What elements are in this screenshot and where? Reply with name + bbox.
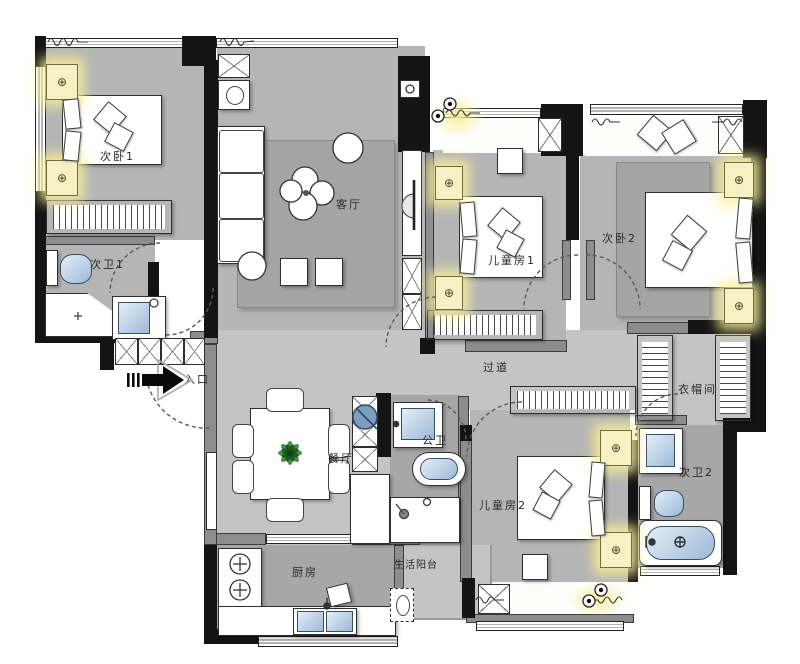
wall-entry-step — [100, 342, 114, 370]
kids2-balcony-cabinet — [478, 584, 510, 614]
utility-cabinet-xbox — [218, 54, 250, 78]
tv-panel — [402, 150, 422, 256]
bedroom2-lamp-top: ⊕ — [724, 162, 754, 198]
window-kids2-balcony — [476, 621, 624, 631]
wall-left-lower — [35, 192, 46, 332]
label-corridor: 过道 — [483, 359, 509, 375]
living-ottoman-1 — [280, 258, 308, 286]
kids2-lamp-bottom: ⊕ — [600, 532, 632, 568]
window-bath2-bottom — [640, 566, 720, 576]
wall-bed2door-r — [586, 240, 595, 300]
label-closet: 衣帽间 — [678, 381, 717, 397]
public-bath-cabinet-3 — [352, 447, 378, 472]
label-entrance: 入口 — [184, 371, 210, 387]
floor-plan: ⊕ ⊕ ⊕ ⊕ ⊕ ⊕ — [0, 0, 800, 664]
public-bath-counter — [350, 474, 390, 544]
entry-shoe-cabinet-4 — [184, 338, 205, 365]
kids2-balcony-light-glow — [568, 582, 628, 616]
public-bath-cabinet-1 — [352, 396, 378, 422]
wall-kitchen-divider-l — [216, 533, 266, 545]
wall-column-living-kids1 — [398, 56, 430, 152]
tv-panel-cabinet-1 — [402, 258, 422, 294]
wall-kids2-left-cap — [460, 425, 472, 441]
public-bath-toilet-bowl — [420, 458, 458, 480]
sofa-cushion-3 — [219, 219, 264, 262]
label-utility-balcony: 生活阳台 — [394, 556, 438, 571]
bedroom1-headboard-pillow-1 — [62, 98, 81, 130]
bedroom2-lamp-bottom: ⊕ — [724, 288, 754, 324]
label-bedroom2: 次卧2 — [602, 230, 637, 246]
living-gadget — [400, 80, 420, 98]
bath2-toilet-bowl — [654, 490, 684, 517]
bedroom1-headboard-pillow-2 — [62, 130, 81, 162]
wall-kids1-bottom-cap — [420, 338, 435, 354]
kids2-lamp-top: ⊕ — [600, 430, 632, 466]
wall-closet-top — [627, 322, 689, 334]
label-kitchen: 厨房 — [292, 564, 318, 580]
wall-closet-right — [751, 330, 766, 426]
door-arc-entry — [148, 385, 210, 428]
kids2-wardrobe — [510, 386, 636, 414]
living-ottoman-2 — [315, 258, 343, 286]
window-living-top — [216, 38, 398, 48]
dining-chair-left-1 — [232, 424, 254, 458]
entry-shoe-cabinet-3 — [161, 338, 184, 365]
utility-washer — [390, 588, 414, 622]
window-bedroom1-top — [45, 38, 183, 48]
kids2-headboard-pillow-2 — [588, 499, 605, 536]
bedroom1-lamp-top: ⊕ — [46, 64, 78, 100]
kids1-balcony-light-glow — [432, 94, 484, 138]
wall-shaft-public — [376, 393, 391, 457]
entry-shoe-cabinet-1 — [115, 338, 138, 365]
kids1-balcony-cabinet — [538, 118, 562, 152]
bath1-toilet-bowl — [60, 254, 92, 284]
kitchen-counter-left — [218, 548, 262, 608]
kids1-lamp-top: ⊕ — [435, 166, 463, 200]
sofa-cushion-1 — [219, 130, 264, 173]
public-bath-cabinet-2 — [352, 422, 378, 447]
bath2-sink — [646, 434, 675, 467]
label-bath2: 次卫2 — [679, 464, 714, 480]
label-dining: 餐厅 — [328, 450, 354, 466]
bath2-bathtub-water — [646, 526, 715, 560]
door-kitchen-sliding — [266, 534, 354, 544]
kitchen-sink-basin-1 — [297, 611, 324, 632]
entrance-arrow-icon — [127, 360, 192, 400]
label-kids1: 儿童房1 — [488, 252, 536, 268]
wall-kitchen-left — [204, 545, 217, 633]
kids1-wardrobe — [427, 310, 543, 340]
entry-shoe-cabinet-2 — [138, 338, 161, 365]
bath1-toilet-tank — [46, 250, 58, 286]
wall-kids2-balcony-l — [462, 578, 475, 618]
tv-panel-cabinet-2 — [402, 294, 422, 330]
window-kitchen-bottom — [258, 636, 398, 647]
dining-table — [250, 408, 330, 500]
label-kids2: 儿童房2 — [479, 497, 527, 513]
public-bath-shower — [390, 497, 460, 543]
wall-kids1-bottom — [465, 340, 567, 352]
kids1-headboard-pillow-1 — [460, 201, 478, 237]
kids1-stool — [497, 148, 523, 174]
wall-top-right-corner — [743, 100, 767, 158]
wall-bedroom1-bath1 — [45, 236, 155, 245]
closet-wardrobe-right — [715, 335, 751, 421]
washing-machine-nook — [218, 80, 250, 110]
bedroom1-radiator — [46, 200, 172, 234]
kids2-stool — [522, 554, 548, 580]
dining-chair-top — [266, 388, 304, 412]
closet-wardrobe-left — [637, 335, 673, 421]
window-bedroom1-left — [35, 66, 46, 192]
label-bath1: 次卫1 — [90, 256, 125, 272]
wall-bed2door-l — [562, 240, 571, 300]
sofa-cushion-2 — [219, 173, 264, 219]
label-living: 客厅 — [336, 196, 362, 212]
dining-chair-left-2 — [232, 460, 254, 494]
kitchen-sink-basin-2 — [326, 611, 353, 632]
window-bedroom2-bay — [590, 104, 743, 115]
label-bedroom1: 次卧1 — [100, 148, 135, 164]
wall-kids1-bedroom2 — [566, 130, 579, 240]
dining-wall-cabinet — [206, 452, 217, 530]
bath1-sink — [118, 302, 150, 334]
wall-bedroom1-living — [204, 60, 218, 338]
wall-bath2-right — [723, 430, 737, 575]
kids1-headboard-pillow-2 — [460, 238, 478, 274]
bedroom1-lamp-bottom: ⊕ — [46, 160, 78, 196]
kids1-lamp-bottom: ⊕ — [435, 276, 463, 310]
bath2-toilet-tank — [639, 486, 651, 520]
dining-chair-bottom — [266, 498, 304, 522]
bay-cabinet — [718, 116, 744, 154]
label-bath-public: 公卫 — [422, 432, 448, 448]
